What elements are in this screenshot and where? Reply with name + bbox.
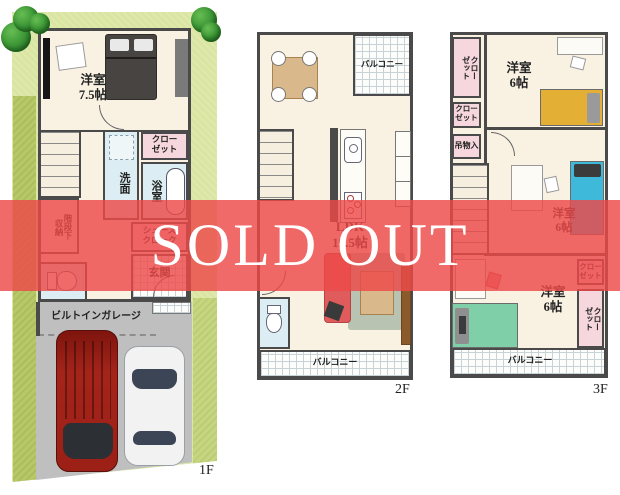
desk bbox=[55, 42, 86, 71]
wall bbox=[484, 35, 487, 163]
sink-faucet bbox=[349, 144, 358, 153]
stairs-1f bbox=[39, 130, 81, 198]
floor-label-3f: 3F bbox=[593, 382, 608, 398]
lot-strip-right bbox=[193, 298, 217, 482]
side-counter bbox=[395, 131, 411, 207]
room-label-closet-3f-nw: クロー ゼット bbox=[456, 42, 478, 94]
floor-label-1f: 1F bbox=[199, 463, 214, 479]
wall bbox=[484, 127, 605, 130]
dining-chair bbox=[302, 87, 317, 102]
room-label-hanging-storage: 吊物入 bbox=[453, 141, 480, 151]
bed-yellow bbox=[540, 89, 603, 126]
room-label-closet-3f-se: クロー ゼット bbox=[581, 294, 601, 344]
room-label-balcony-2f-bottom: バルコニー bbox=[300, 357, 370, 368]
washing-machine bbox=[109, 135, 134, 160]
door-arc bbox=[99, 105, 124, 130]
room-label-washroom: 洗面 bbox=[113, 163, 129, 203]
car-roof-stripes bbox=[65, 341, 111, 419]
room-label-garage: ビルトインガレージ bbox=[48, 311, 144, 323]
room-label-closet-1f: クロー ゼット bbox=[143, 134, 186, 155]
car-windshield bbox=[132, 369, 177, 389]
room-label-closet-3f-w: クロー ゼット bbox=[454, 104, 479, 122]
white-car bbox=[124, 346, 185, 466]
floorplan-canvas: 洋室 7.5帖 階段下 収納 洗面 クロー ゼット 浴室 bbox=[0, 0, 620, 495]
room-toilet-2f bbox=[258, 297, 290, 349]
room-label-balcony-2f-top: バルコニー bbox=[354, 59, 410, 69]
tree-icon bbox=[201, 22, 221, 42]
chair bbox=[544, 176, 560, 193]
room-label-bedroom-1f: 洋室 7.5帖 bbox=[55, 73, 131, 104]
window-bar bbox=[43, 38, 50, 99]
red-car bbox=[56, 330, 118, 472]
stairs-2f bbox=[258, 129, 294, 201]
car-windshield bbox=[63, 423, 113, 459]
dining-chair bbox=[271, 51, 286, 66]
sold-out-banner: SOLD OUT bbox=[0, 200, 620, 291]
toilet-icon bbox=[266, 313, 282, 333]
floor-label-2f: 2F bbox=[395, 382, 410, 398]
wall bbox=[36, 302, 40, 336]
bed-green bbox=[452, 303, 518, 348]
chair bbox=[570, 55, 586, 70]
wardrobe bbox=[175, 39, 188, 97]
entrance-porch bbox=[152, 302, 191, 314]
room-label-bedroom-3f-n: 洋室 6帖 bbox=[491, 61, 547, 92]
tree-icon bbox=[29, 13, 50, 34]
desk bbox=[557, 37, 603, 55]
door-arc bbox=[491, 132, 515, 156]
sold-out-text: SOLD OUT bbox=[151, 211, 470, 280]
room-label-balcony-3f: バルコニー bbox=[495, 355, 565, 366]
dining-chair bbox=[302, 51, 317, 66]
car-rear-window bbox=[133, 431, 176, 445]
dining-chair bbox=[271, 87, 286, 102]
